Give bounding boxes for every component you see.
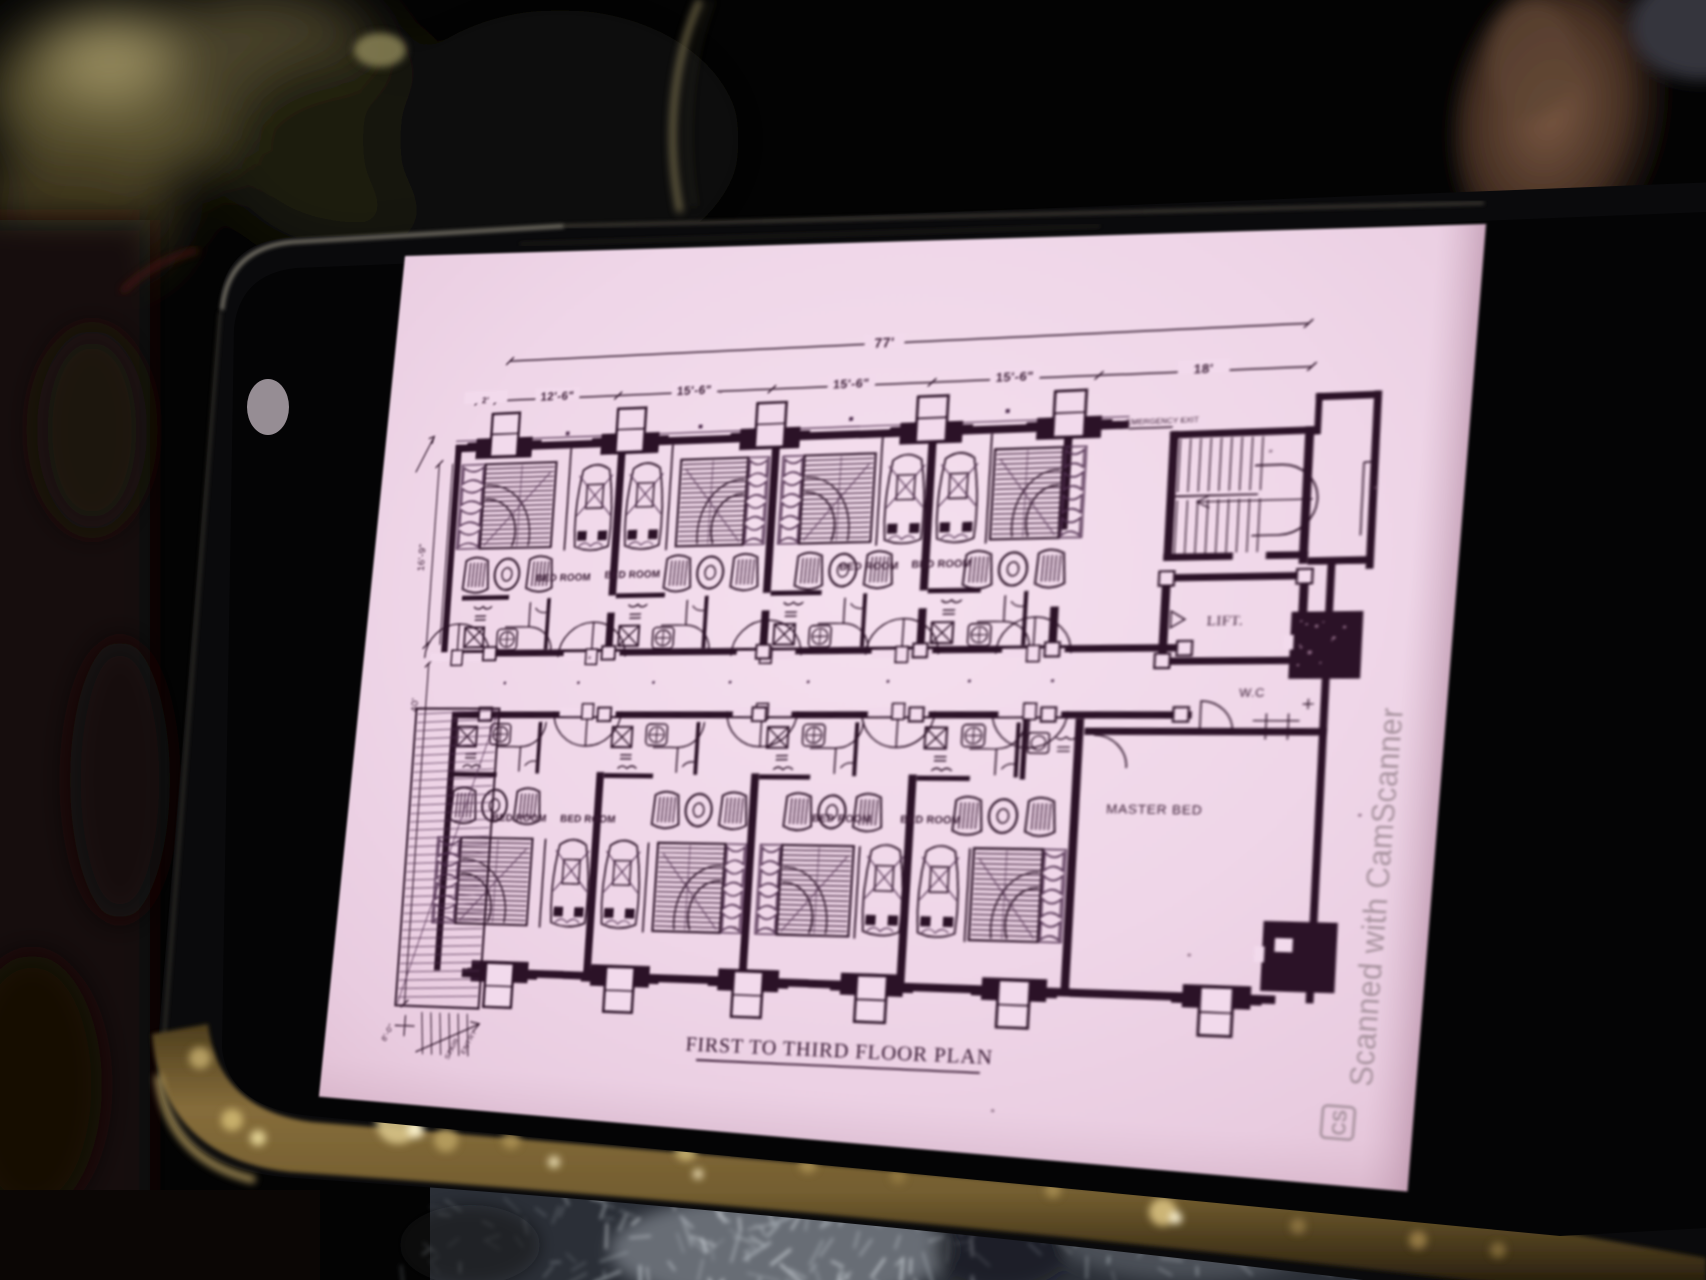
svg-text:BED ROOM: BED ROOM [839,560,899,572]
svg-text:W.C: W.C [1239,687,1265,700]
svg-text:18': 18' [1193,362,1214,377]
svg-text:16'-9": 16'-9" [416,543,428,571]
svg-text:15'-6": 15'-6" [833,377,870,392]
svg-text:BED ROOM: BED ROOM [560,813,616,825]
svg-text:BED ROOM: BED ROOM [604,568,660,580]
svg-text:40': 40' [409,698,420,712]
svg-text:BED ROOM: BED ROOM [536,572,591,584]
svg-text:12'-6": 12'-6" [540,390,575,404]
svg-text:BED ROOM: BED ROOM [900,814,961,826]
svg-text:MASTER BED: MASTER BED [1106,803,1203,818]
svg-text:BED ROOM: BED ROOM [911,557,972,570]
svg-text:15'-6": 15'-6" [995,370,1034,385]
svg-text:15'-6": 15'-6" [676,384,712,399]
svg-text:77': 77' [874,334,895,351]
svg-text:2': 2' [482,395,490,405]
svg-text:CS: CS [1329,1109,1352,1136]
svg-text:LIFT.: LIFT. [1206,613,1243,629]
